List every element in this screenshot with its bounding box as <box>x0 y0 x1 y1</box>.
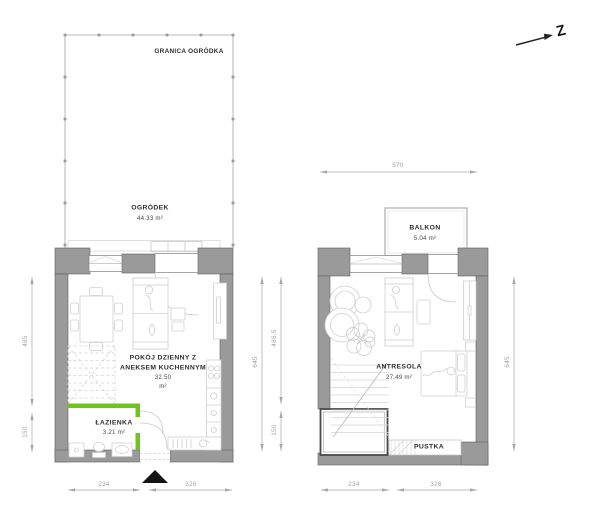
pouf-chairs <box>325 286 371 342</box>
entrance-door <box>140 411 170 462</box>
dim-mezzanine-bottom-right: 326 <box>430 481 442 487</box>
garden-area: 44.33 m² <box>137 216 163 222</box>
dim-ground-bottom-right: 326 <box>185 481 197 487</box>
bathroom-fixtures <box>69 443 132 458</box>
mezzanine-name: ANTRESOLA <box>376 365 421 372</box>
kitchen-counter <box>168 360 221 450</box>
side-table <box>171 308 185 331</box>
living-room-area-value: 32.50 <box>155 375 171 381</box>
balcony-name: BALKON <box>409 226 440 233</box>
mezzanine-balcony-door <box>428 255 458 303</box>
coffee-table <box>417 300 430 324</box>
ground-floor-window <box>89 256 122 272</box>
floor-plan-page: GRANICA OGRÓDKA OGRÓDEK 44.33 m² POKÓJ D… <box>0 0 600 520</box>
dim-ground-side-upper: 485 <box>23 335 29 347</box>
living-room-name-line1: POKÓJ DZIENNY Z <box>130 355 197 362</box>
tv-cabinet <box>214 283 227 339</box>
mezzanine-area: 27.49 m² <box>386 375 412 381</box>
living-room-name-line2: ANEKSEM KUCHENNYM <box>120 365 206 372</box>
floor-plan-drawing <box>0 0 600 520</box>
mezzanine-window <box>350 256 402 273</box>
dining-set <box>71 288 123 351</box>
dim-ground-right-lower: 150 <box>272 424 278 436</box>
garden-name: OGRÓDEK <box>131 206 169 213</box>
bed <box>421 351 467 396</box>
sofa-ground <box>133 278 168 349</box>
staircase-ground <box>68 346 115 404</box>
bathroom-area: 3.21 m² <box>103 429 125 435</box>
dim-mezzanine-top: 570 <box>392 163 404 169</box>
balcony-area: 5.04 m² <box>414 236 436 242</box>
north-arrow-icon <box>516 34 553 45</box>
dim-ground-bottom-left: 234 <box>98 481 110 487</box>
dim-mezzanine-bottom-left: 234 <box>348 481 360 487</box>
bathroom-name: ŁAZIENKA <box>95 420 132 427</box>
living-room-area-unit: m² <box>159 384 167 390</box>
dim-ground-right-total: 645 <box>253 356 259 368</box>
dim-mezzanine-right: 645 <box>505 356 511 368</box>
terrace <box>68 241 220 252</box>
garden-boundary-label: GRANICA OGRÓDKA <box>154 48 223 54</box>
dim-ground-right-upper: 486.5 <box>272 329 278 347</box>
void-opening <box>321 409 388 455</box>
sofa-mezzanine <box>385 278 413 346</box>
dim-ground-side-lower: 150 <box>23 426 29 438</box>
void-label: PUSTKA <box>414 444 444 451</box>
entrance-marker <box>142 470 168 483</box>
